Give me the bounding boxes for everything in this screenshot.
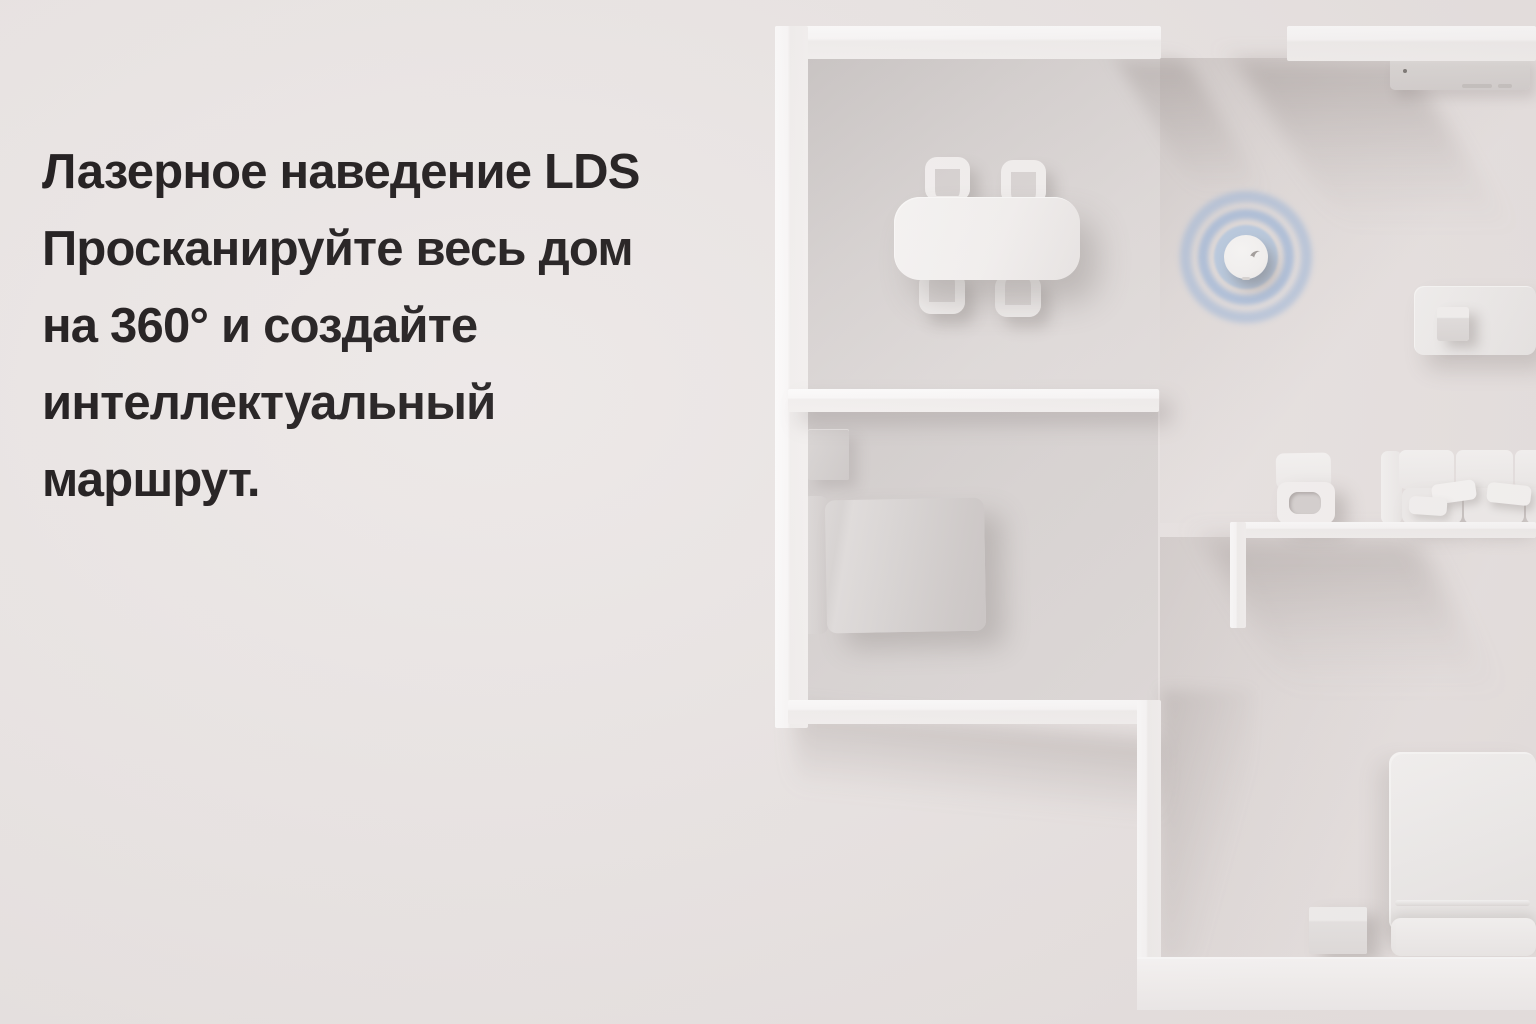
promo-banner: Лазерное наведение LDS Просканируйте вес… <box>0 0 1536 1024</box>
dining-table <box>894 197 1080 280</box>
wall-bottom-left <box>788 700 1141 724</box>
robot-logo-icon <box>1248 248 1262 266</box>
wall-connector <box>1137 700 1161 977</box>
bed-vertical-crease <box>1395 900 1530 906</box>
headline-line-2: Просканируйте весь дом <box>42 211 732 288</box>
headline: Лазерное наведение LDS Просканируйте вес… <box>42 134 732 519</box>
headline-line-1: Лазерное наведение LDS <box>42 134 732 211</box>
bed-vertical-pillow <box>1391 918 1536 956</box>
console-vent-slot-2 <box>1498 84 1512 88</box>
shadow-bottom-wall-outside <box>795 708 1160 835</box>
dining-chair-bottom-right <box>995 275 1041 317</box>
cube-on-mat <box>1437 307 1469 341</box>
wall-bottom-right <box>1137 957 1536 1010</box>
wall-left <box>775 26 808 728</box>
wall-living-divider <box>1230 522 1536 538</box>
headline-line-5: маршрут. <box>42 442 732 519</box>
bed-mattress <box>825 498 986 634</box>
headline-line-4: интеллектуальный <box>42 365 732 442</box>
robot-bumper-notch <box>1242 277 1250 280</box>
sofa-backrest-3 <box>1515 450 1536 489</box>
robot-body <box>1224 235 1268 279</box>
shadow-connector-wall <box>1162 690 1252 958</box>
console-led-dot <box>1403 69 1407 73</box>
wall-interior <box>788 389 1159 412</box>
dining-chair-top-left <box>925 157 970 201</box>
sofa-pillow-3 <box>1408 496 1447 517</box>
wall-top-left <box>775 26 1161 59</box>
console-vent-slot-1 <box>1462 84 1492 88</box>
nightstand <box>808 429 849 480</box>
bed-vertical-duvet <box>1389 752 1536 932</box>
wall-top-right <box>1287 26 1536 61</box>
mat <box>1414 286 1536 355</box>
headline-line-3: на 360° и создайте <box>42 288 732 365</box>
stool-handle-cutout <box>1289 492 1321 514</box>
wall-living-divider-stub <box>1230 522 1246 628</box>
storage-cube <box>1309 907 1367 954</box>
